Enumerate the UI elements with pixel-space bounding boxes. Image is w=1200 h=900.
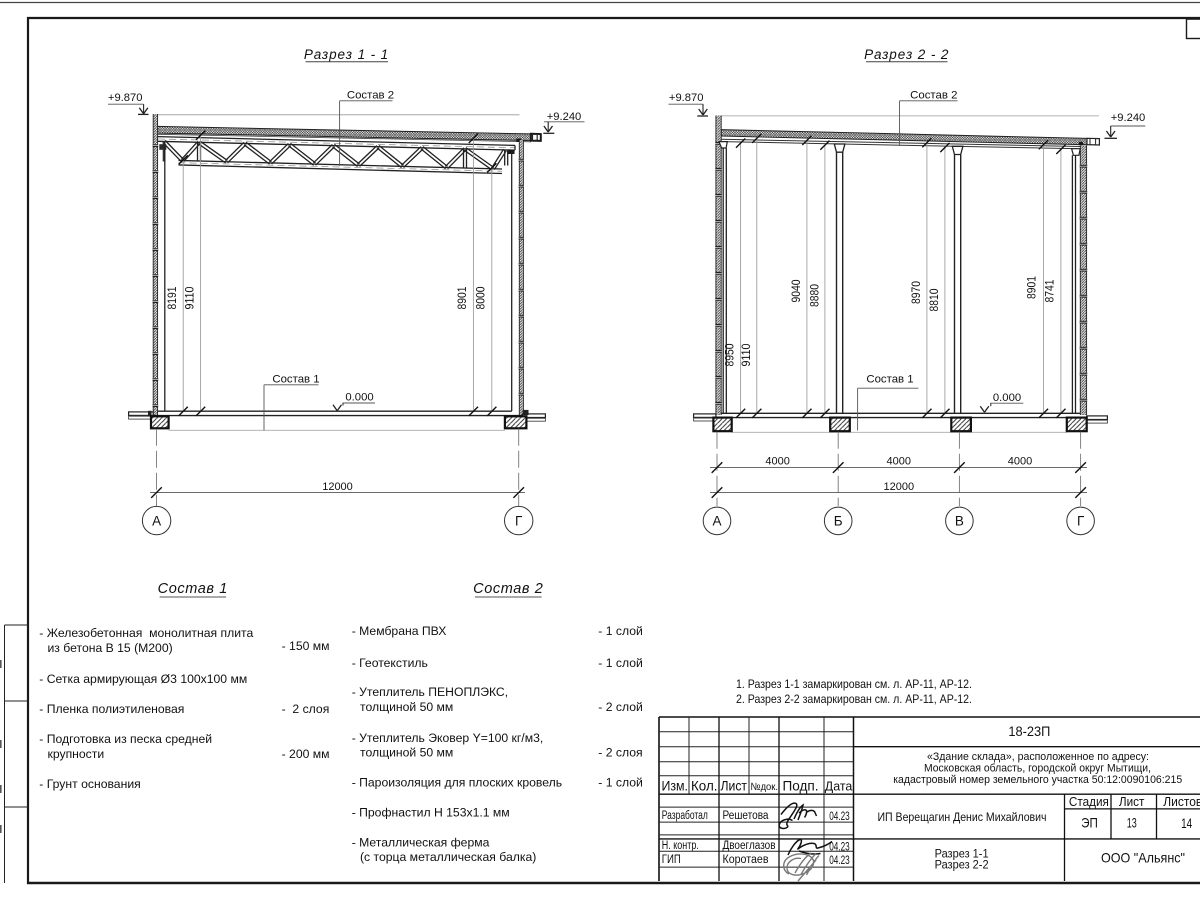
svg-text:18-23П: 18-23П [1008, 724, 1050, 739]
svg-text:Состав 1: Состав 1 [866, 374, 913, 386]
svg-text:Г: Г [1077, 514, 1085, 529]
svg-text:А: А [152, 513, 161, 528]
svg-text:- 2 слоя: - 2 слоя [282, 702, 330, 716]
svg-text:Б: Б [834, 514, 843, 529]
svg-text:+9.240: +9.240 [547, 111, 582, 123]
svg-text:+9.870: +9.870 [669, 92, 704, 104]
svg-text:4000: 4000 [1008, 455, 1032, 467]
svg-text:0.000: 0.000 [993, 392, 1021, 404]
svg-text:8901: 8901 [455, 286, 469, 309]
svg-text:Н. контр.: Н. контр. [662, 840, 699, 852]
svg-text:- Утеплитель ПЕНОПЛЭКС,: - Утеплитель ПЕНОПЛЭКС, [352, 685, 508, 699]
svg-text:+9.240: +9.240 [1111, 112, 1146, 124]
svg-text:- Мембрана ПВХ: - Мембрана ПВХ [352, 624, 447, 638]
svg-text:1. Разрез 1-1 замаркирован см.: 1. Разрез 1-1 замаркирован см. л. АР-11,… [736, 677, 972, 691]
svg-text:8741: 8741 [1042, 279, 1056, 302]
svg-text:9110: 9110 [739, 343, 753, 366]
svg-text:ЭП: ЭП [1081, 815, 1098, 831]
svg-text:Лист: Лист [1119, 794, 1145, 809]
svg-text:№док.: №док. [751, 781, 779, 793]
svg-text:Московская область, городской: Московская область, городской округ Мыти… [924, 762, 1151, 774]
svg-text:Листов: Листов [1163, 794, 1200, 809]
svg-text:2. Разрез 2-2 замаркирован см.: 2. Разрез 2-2 замаркирован см. л. АР-11,… [736, 692, 972, 706]
svg-text:04.23: 04.23 [829, 811, 850, 823]
svg-text:- 1 слой: - 1 слой [598, 624, 643, 638]
svg-text:ООО "Альянс": ООО "Альянс" [1101, 851, 1185, 866]
svg-text:Стадия: Стадия [1069, 794, 1109, 809]
svg-text:«Здание склада», расположенное: «Здание склада», расположенное по адресу… [927, 751, 1149, 763]
svg-text:Разрез 1 - 1: Разрез 1 - 1 [304, 47, 389, 62]
svg-text:толщиной 50 мм: толщиной 50 мм [360, 700, 453, 714]
svg-text:0.000: 0.000 [345, 392, 373, 404]
svg-text:12000: 12000 [884, 481, 915, 493]
svg-text:А: А [712, 514, 721, 529]
svg-text:- Утеплитель Эковер Y=100 кг/м: - Утеплитель Эковер Y=100 кг/м3, [352, 731, 544, 745]
svg-text:ИП Верещагин Денис Михайлович: ИП Верещагин Денис Михайлович [878, 810, 1047, 824]
svg-text:8901: 8901 [1024, 276, 1038, 299]
svg-text:Подп.: Подп. [783, 778, 819, 794]
svg-text:8810: 8810 [927, 288, 941, 311]
svg-text:04.23: 04.23 [829, 842, 850, 854]
svg-text:крупности: крупности [48, 747, 105, 761]
svg-text:- Металлическая ферма: - Металлическая ферма [352, 835, 490, 849]
svg-text:- Пленка полиэтиленовая: - Пленка полиэтиленовая [39, 702, 184, 716]
svg-text:толщиной 50 мм: толщиной 50 мм [360, 746, 453, 760]
svg-text:Разрез 2 - 2: Разрез 2 - 2 [864, 47, 949, 62]
svg-text:(с торца металлическая балка): (с торца металлическая балка) [360, 850, 536, 864]
svg-text:Дата: Дата [825, 779, 853, 794]
svg-text:8880: 8880 [807, 284, 821, 307]
svg-text:8970: 8970 [909, 281, 923, 304]
svg-text:- 150 мм: - 150 мм [282, 639, 330, 653]
svg-text:- Грунт основания: - Грунт основания [39, 777, 140, 791]
svg-text:Г: Г [515, 513, 523, 528]
svg-text:- Подготовка из песка средней: - Подготовка из песка средней [39, 732, 212, 746]
svg-text:Решетова: Решетова [723, 810, 770, 822]
svg-text:13: 13 [1127, 815, 1137, 831]
svg-text:- Сетка армирующая Ø3 100х100: - Сетка армирующая Ø3 100х100 мм [39, 672, 247, 686]
svg-text:Изм.: Изм. [662, 778, 689, 794]
svg-text:8191: 8191 [165, 286, 179, 309]
svg-text:- Железобетонная монолитная п: - Железобетонная монолитная плита [39, 626, 253, 640]
svg-text:8000: 8000 [474, 286, 488, 309]
svg-text:- 2 слоя: - 2 слоя [598, 746, 642, 760]
svg-text:Разработал: Разработал [662, 810, 708, 822]
svg-text:- 1 слой: - 1 слой [598, 656, 643, 670]
svg-text:4000: 4000 [765, 455, 789, 467]
svg-text:- 200 мм: - 200 мм [282, 747, 330, 761]
svg-text:Состав 1: Состав 1 [158, 581, 228, 597]
svg-text:В: В [955, 514, 964, 529]
svg-text:14: 14 [1181, 815, 1192, 831]
svg-text:Состав 1: Состав 1 [272, 374, 319, 386]
svg-text:- Геотекстиль: - Геотекстиль [352, 656, 428, 670]
svg-text:04.23: 04.23 [829, 855, 850, 867]
svg-text:Разрез 2-2: Разрез 2-2 [935, 857, 989, 871]
svg-text:из бетона В 15 (М200): из бетона В 15 (М200) [48, 641, 173, 655]
svg-text:Состав 2: Состав 2 [910, 90, 957, 102]
svg-text:Кол.: Кол. [691, 778, 718, 794]
svg-text:Состав 2: Состав 2 [347, 90, 394, 102]
svg-text:12000: 12000 [322, 481, 353, 493]
svg-text:+9.870: +9.870 [108, 92, 143, 104]
svg-text:- 2 слой: - 2 слой [598, 700, 643, 714]
svg-text:4000: 4000 [887, 455, 911, 467]
svg-text:8950: 8950 [723, 343, 737, 366]
svg-text:Лист: Лист [721, 778, 748, 794]
svg-text:9110: 9110 [183, 286, 197, 309]
svg-text:Коротаев: Коротаев [723, 854, 769, 866]
svg-text:кадастровый номер земельного у: кадастровый номер земельного участка 50:… [893, 774, 1182, 786]
svg-text:9040: 9040 [789, 279, 803, 302]
svg-text:Состав 2: Состав 2 [473, 581, 543, 597]
svg-text:- Профнастил Н 153х1.1 мм: - Профнастил Н 153х1.1 мм [352, 806, 510, 820]
svg-text:- 1 слой: - 1 слой [598, 776, 643, 790]
svg-text:ГИП: ГИП [662, 854, 681, 866]
svg-text:- Пароизоляция для плоских кро: - Пароизоляция для плоских кровель [352, 776, 562, 790]
svg-text:Двоеглазов: Двоеглазов [723, 840, 776, 852]
